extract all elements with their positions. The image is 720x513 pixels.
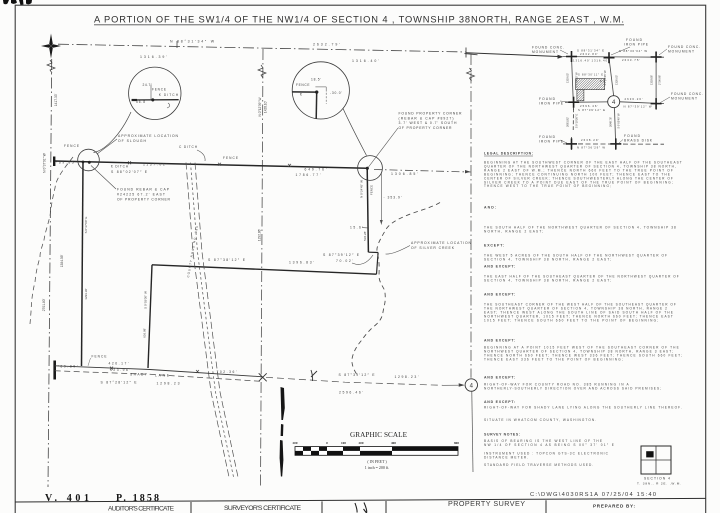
svg-text:THENCE EAST 336 FEET TO THE PO: THENCE EAST 336 FEET TO THE POINT OF BEG… [484,357,623,361]
svg-text:S 0°10′26″ E: S 0°10′26″ E [575,113,579,128]
svg-text:#24225 67.2' EAST: #24225 67.2' EAST [117,193,165,197]
svg-text:-30.0': -30.0' [330,91,342,95]
svg-text:1015 FEET; THENCE SOUTH 660 FE: 1015 FEET; THENCE SOUTH 660 FEET TO THE … [484,318,658,322]
svg-text:LEGAL DESCRIPTION:: LEGAL DESCRIPTION: [484,152,533,156]
svg-text:- 353.9': - 353.9' [384,196,402,200]
svg-text:FOUND CONC.: FOUND CONC. [671,92,703,96]
svg-text:100: 100 [341,441,346,445]
svg-text:1293.30': 1293.30' [84,288,88,300]
svg-text:2636.26': 2636.26' [625,97,643,101]
svg-text:1417.33': 1417.33' [54,93,58,106]
svg-text:FENCE: FENCE [92,354,107,358]
svg-text:€ DITCH: € DITCH [111,165,129,169]
svg-text:S 87°39′12″ E: S 87°39′12″ E [578,108,605,112]
svg-text:800: 800 [454,441,459,445]
svg-text:FENCE: FENCE [223,156,238,160]
svg-text:S 88°30′11″ E: S 88°30′11″ E [578,73,603,77]
svg-text:536.28': 536.28' [363,231,367,241]
svg-text:1316.40': 1316.40' [592,59,609,63]
svg-text:NORTHERLY-SOUTHERLY DIRECTION: NORTHERLY-SOUTHERLY DIRECTION OVER AND A… [484,386,661,390]
svg-text:649.76': 649.76' [305,168,327,172]
svg-text:STANDARD FIELD TRAVERSE METHOD: STANDARD FIELD TRAVERSE METHODS USED. [484,463,593,467]
svg-text:OF PROPERTY CORNER: OF PROPERTY CORNER [117,198,171,202]
svg-text:FENCE: FENCE [296,83,310,87]
svg-text:€ DITCH: € DITCH [159,93,179,97]
svg-text:1786.77': 1786.77' [296,173,321,177]
svg-text:FOUND: FOUND [624,134,641,138]
svg-text:70.02': 70.02' [336,259,353,263]
svg-text:FOUND PROPERTY CORNER: FOUND PROPERTY CORNER [399,112,463,116]
svg-text:N 87°36′29″ W: N 87°36′29″ W [577,145,605,149]
svg-text:400: 400 [391,441,396,445]
svg-text:*69.89': *69.89' [58,364,78,368]
svg-text:1396.83': 1396.83' [289,260,314,264]
svg-text:N 87°39′12″ W: N 87°39′12″ W [624,105,652,109]
svg-text:AND EXCEPT:: AND EXCEPT: [484,376,515,380]
svg-text:*69.85': *69.85' [56,161,76,165]
svg-text:T. 38N., R 2E. ,W.M.: T. 38N., R 2E. ,W.M. [637,481,681,485]
svg-text:N 0°12′39″ W: N 0°12′39″ W [258,98,262,117]
svg-text:APPROXIMATE LOCATION: APPROXIMATE LOCATION [411,241,472,245]
svg-text:80': 80' [600,79,608,83]
svg-text:1320.05': 1320.05' [615,75,619,85]
svg-text:2596.46': 2596.46' [339,390,363,394]
svg-text:AND EXCEPT:: AND EXCEPT: [484,400,515,404]
svg-text:OF PROPERTY CORNER: OF PROPERTY CORNER [399,126,453,130]
svg-text:1384.59': 1384.59' [60,254,64,267]
svg-text:MONUMENT: MONUMENT [532,50,558,54]
svg-text:N 88°31′34″ W: N 88°31′34″ W [170,40,215,44]
svg-text:1292.86': 1292.86' [258,229,262,242]
svg-text:702.36': 702.36' [217,370,237,374]
svg-text:2701.80': 2701.80' [42,298,46,311]
svg-text:FOUND CONC.: FOUND CONC. [668,45,700,49]
svg-text:426.17': 426.17' [109,361,129,365]
svg-text:2700.96': 2700.96' [658,75,662,85]
svg-text:NW 1/4 OF SECTION 4 AS BEING S: NW 1/4 OF SECTION 4 AS BEING S 00° 37' 0… [484,443,614,447]
svg-text:1316.40': 1316.40' [573,59,590,63]
svg-text:IRON PIPE: IRON PIPE [624,43,649,47]
svg-text:NORTH, RANGE 2 EAST;: NORTH, RANGE 2 EAST; [484,229,543,233]
svg-text:1318.66': 1318.66' [649,75,653,85]
svg-text:SECTION 4, TOWNSHIP 38 NORTH,: SECTION 4, TOWNSHIP 38 NORTH, RANGE 2 EA… [484,278,611,282]
svg-text:FOUND: FOUND [539,135,556,139]
svg-text:S 87°39′12″ E: S 87°39′12″ E [339,373,376,377]
svg-text:EXCEPT:: EXCEPT: [484,244,504,248]
svg-text:FOUND REBAR & CAP: FOUND REBAR & CAP [117,188,170,192]
svg-text:S 88°02′07″ E: S 88°02′07″ E [111,170,148,174]
svg-text:SURVEY NOTES:: SURVEY NOTES: [484,433,520,437]
svg-text:S 0°37′00″ E: S 0°37′00″ E [84,217,88,234]
svg-text:1319.05': 1319.05' [565,73,569,83]
svg-text:€: € [300,93,302,97]
svg-text:PREPARED BY:: PREPARED BY: [593,504,635,509]
svg-text:FOUND: FOUND [539,97,556,101]
svg-text:C DITCH: C DITCH [179,145,198,149]
svg-text:24.7': 24.7' [143,83,152,87]
svg-text:SECTION 4, TOWNSHIP 38 NORTH,: SECTION 4, TOWNSHIP 38 NORTH, RANGE 2 EA… [484,257,611,261]
svg-text:AND EXCEPT:: AND EXCEPT: [484,293,515,297]
svg-text:2633.75': 2633.75' [622,58,640,62]
svg-text:MONUMENT: MONUMENT [668,50,694,54]
svg-text:S 0°24′45″ W: S 0°24′45″ W [603,70,607,86]
svg-text:OF SILVER CREEK: OF SILVER CREEK [411,246,455,250]
svg-text:423.96': 423.96' [110,368,130,372]
svg-text:1298.23': 1298.23' [395,375,419,379]
svg-text:S 87°38′12″ E: S 87°38′12″ E [208,258,246,262]
svg-text:THENCE WEST TO THE TRUE POINT: THENCE WEST TO THE TRUE POINT OF BEGINNI… [484,184,611,188]
svg-text:BRASS DISK: BRASS DISK [624,139,653,143]
svg-text:FOUND CONC.: FOUND CONC. [532,46,564,50]
svg-text:AND EXCEPT:: AND EXCEPT: [484,339,515,343]
svg-text:DISTANCE METER.: DISTANCE METER. [484,455,528,459]
svg-text:PROPERTY SURVEY: PROPERTY SURVEY [448,499,525,508]
svg-text:S 87°28′12″ E: S 87°28′12″ E [101,381,138,385]
svg-text:A PORTION OF THE SW1/4 OF THE: A PORTION OF THE SW1/4 OF THE NW1/4 OF S… [94,14,624,24]
svg-text:3.7' WEST & 0.7' SOUTH: 3.7' WEST & 0.7' SOUTH [399,121,458,125]
svg-text:SECTION 4: SECTION 4 [644,477,670,481]
svg-text:IRON PIPE: IRON PIPE [539,102,564,106]
svg-text:1 inch = 200 ft.: 1 inch = 200 ft. [365,465,390,470]
svg-text:56.8: 56.8 [136,100,145,104]
svg-text:S 87°39′12″ E: S 87°39′12″ E [323,253,360,257]
svg-text:N 0°24′45″ W: N 0°24′45″ W [359,180,363,198]
svg-text:2632.80': 2632.80' [580,52,598,56]
svg-text:FOUND: FOUND [626,38,643,42]
svg-text:AUDITOR'S CERTIFICATE: AUDITOR'S CERTIFICATE [108,506,175,513]
svg-text:S 0°03′00″ W: S 0°03′00″ W [143,291,147,309]
svg-text:SITUATE IN WHATCOM COUNTY, WAS: SITUATE IN WHATCOM COUNTY, WASHINGTON. [484,418,596,422]
svg-text:GRAPHIC SCALE: GRAPHIC SCALE [350,431,408,439]
svg-text:AND EXCEPT:: AND EXCEPT: [484,265,515,269]
svg-text:APPROXIMATE LOCATION: APPROXIMATE LOCATION [118,134,179,138]
svg-text:SHADY: SHADY [130,372,148,376]
svg-text:FENCE: FENCE [64,144,79,148]
svg-text:(REBAR & CAP #8927): (REBAR & CAP #8927) [399,116,454,120]
svg-text:OF SLOUGH: OF SLOUGH [118,139,147,143]
svg-text:N 88°30′04″ W: N 88°30′04″ W [619,49,647,53]
svg-text:2638.29': 2638.29' [581,138,599,142]
svg-text:S 0°03′40″ W: S 0°03′40″ W [617,113,621,129]
svg-text:636.98': 636.98' [142,328,146,338]
svg-text:( IN FEET ): ( IN FEET ) [367,459,387,464]
svg-text:AND:: AND: [484,206,496,210]
svg-text:FENCE: FENCE [152,88,166,92]
svg-text:200: 200 [293,441,298,445]
svg-text:SURVEYOR'S CERTIFICATE: SURVEYOR'S CERTIFICATE [224,505,301,512]
svg-text:2648.76': 2648.76' [608,117,612,127]
svg-text:2661.82': 2661.82' [565,117,569,127]
svg-text:1428.10': 1428.10' [263,101,267,114]
svg-text:200: 200 [359,441,364,445]
svg-text:FENCE: FENCE [369,185,373,195]
svg-text:MONUMENT: MONUMENT [671,97,697,101]
svg-text:18.5': 18.5' [311,77,321,81]
svg-text:N 0°37′01″ W: N 0°37′01″ W [43,152,47,172]
